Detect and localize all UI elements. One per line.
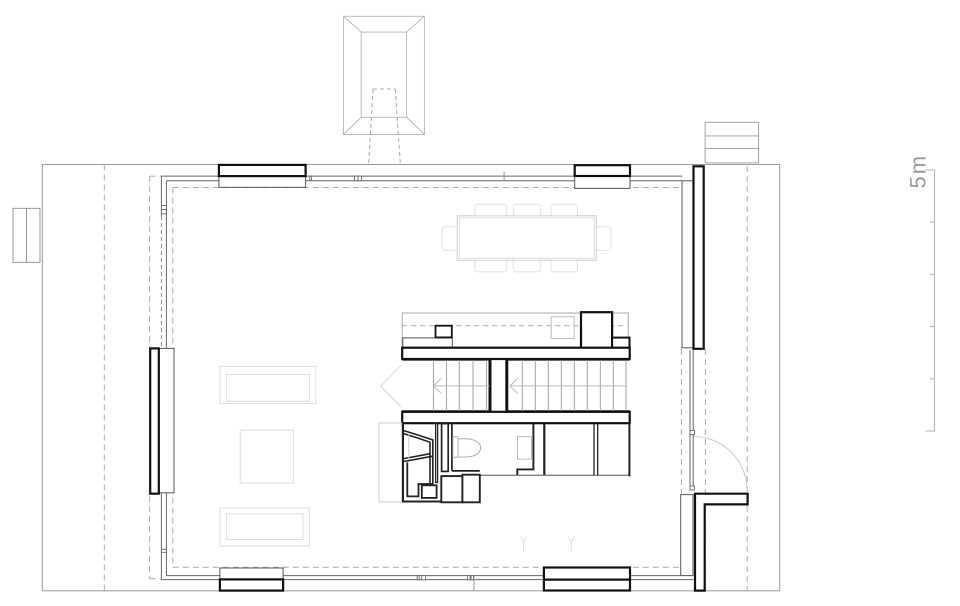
svg-text:5m: 5m [906,154,931,189]
